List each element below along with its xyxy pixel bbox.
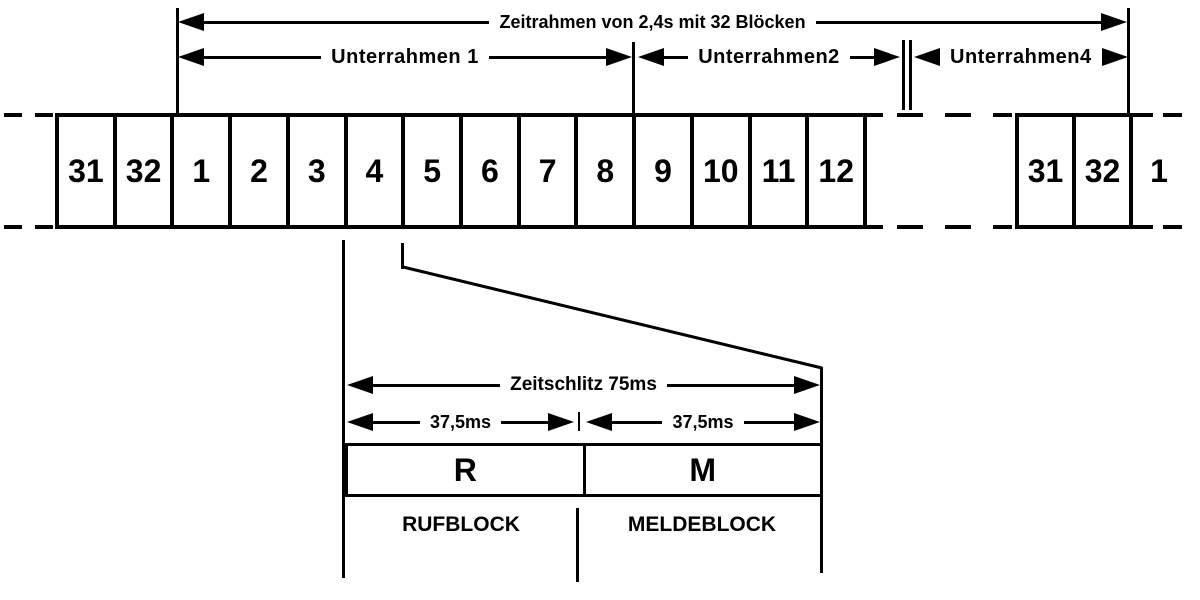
- arrowhead-left-icon: [914, 48, 940, 66]
- block-cell: 7: [517, 117, 575, 225]
- arrow-shaft: [204, 56, 321, 59]
- subframe1-label: Unterrahmen 1: [321, 46, 489, 69]
- arrowhead-left-icon: [347, 413, 373, 431]
- arrowhead-right-icon: [1102, 48, 1128, 66]
- block-cell: 5: [401, 117, 459, 225]
- arrowhead-right-icon: [606, 48, 632, 66]
- block-row-right: 31 32: [1015, 113, 1133, 229]
- arrow-shaft: [850, 56, 874, 59]
- block-cell: 4: [344, 117, 402, 225]
- arrowhead-left-icon: [347, 376, 373, 394]
- timeframe-diagram: Zeitrahmen von 2,4s mit 32 Blöcken Unter…: [0, 0, 1200, 600]
- tick-subframe1-2: [632, 42, 635, 114]
- arrowhead-left-icon: [178, 48, 204, 66]
- slot-arrow-label: Zeitschlitz 75ms: [500, 374, 667, 396]
- frame-arrow: Zeitrahmen von 2,4s mit 32 Blöcken: [178, 10, 1127, 34]
- block-row-main: 31 32 1 2 3 4 5 6 7 8 9 10 11 12: [55, 113, 867, 229]
- arrow-shaft: [664, 56, 688, 59]
- arrow-shaft: [373, 384, 500, 387]
- arrowhead-left-icon: [638, 48, 664, 66]
- arrowhead-left-icon: [586, 413, 612, 431]
- block-cell: 10: [690, 117, 748, 225]
- arrowhead-right-icon: [1101, 13, 1127, 31]
- block-cell-trailing: 1: [1133, 117, 1185, 225]
- tick-half-slot: [578, 412, 580, 431]
- slot-cell-r: R: [348, 446, 583, 494]
- arrow-shaft: [816, 21, 1101, 24]
- subframe2-label: Unterrahmen2: [688, 46, 850, 69]
- tick-break-a: [902, 40, 905, 110]
- block-cell: 32: [113, 117, 171, 225]
- meldeblock-label: MELDEBLOCK: [579, 513, 825, 537]
- half-slot-arrow-1: 37,5ms: [347, 410, 574, 434]
- block-cell: 32: [1072, 117, 1133, 225]
- block-row-dash-bottom-right: [1163, 225, 1182, 229]
- subframe4-arrow: Unterrahmen4: [914, 45, 1127, 69]
- tick-break-b: [909, 40, 912, 110]
- arrow-shaft: [744, 421, 794, 424]
- arrow-shaft: [373, 421, 420, 424]
- slot-arrow: Zeitschlitz 75ms: [347, 373, 820, 397]
- arrow-shaft: [612, 421, 662, 424]
- arrow-shaft: [204, 21, 489, 24]
- zoom-guide-diagonal: [399, 264, 827, 370]
- slot-box: R M: [345, 443, 823, 497]
- block-cell: 1: [170, 117, 228, 225]
- block-cell: 11: [748, 117, 806, 225]
- arrowhead-left-icon: [178, 13, 204, 31]
- block-cell: 12: [805, 117, 867, 225]
- slot-cell-m: M: [583, 446, 821, 494]
- arrow-shaft: [667, 384, 794, 387]
- arrowhead-right-icon: [874, 48, 900, 66]
- block-cell: 31: [1015, 117, 1072, 225]
- subframe4-label: Unterrahmen4: [940, 46, 1102, 69]
- block-row-dash-bottom-left: [4, 225, 54, 229]
- half-slot-label-2: 37,5ms: [662, 412, 743, 433]
- rufblock-label: RUFBLOCK: [345, 513, 577, 537]
- half-slot-arrow-2: 37,5ms: [586, 410, 820, 434]
- block-cell: 9: [632, 117, 690, 225]
- arrowhead-right-icon: [794, 376, 820, 394]
- block-row-dash-bottom-mid: [897, 225, 1012, 229]
- subframe1-arrow: Unterrahmen 1: [178, 45, 632, 69]
- block-cell: 31: [55, 117, 113, 225]
- block-row-stub-bottom-right: [1133, 225, 1153, 229]
- half-slot-label-1: 37,5ms: [420, 412, 501, 433]
- arrow-shaft: [501, 421, 548, 424]
- block-row-stub-bottom: [867, 225, 883, 229]
- block-cell: 2: [228, 117, 286, 225]
- block-cell: 3: [286, 117, 344, 225]
- arrowhead-right-icon: [548, 413, 574, 431]
- block-row-stub-top: [867, 113, 883, 117]
- arrow-shaft: [489, 56, 606, 59]
- frame-arrow-label: Zeitrahmen von 2,4s mit 32 Blöcken: [489, 12, 815, 33]
- arrowhead-right-icon: [794, 413, 820, 431]
- subframe2-arrow: Unterrahmen2: [638, 45, 900, 69]
- block-cell: 8: [574, 117, 632, 225]
- block-row-dash-top-mid: [897, 113, 1012, 117]
- block-cell: 6: [459, 117, 517, 225]
- block-row-dash-top-left: [4, 113, 54, 117]
